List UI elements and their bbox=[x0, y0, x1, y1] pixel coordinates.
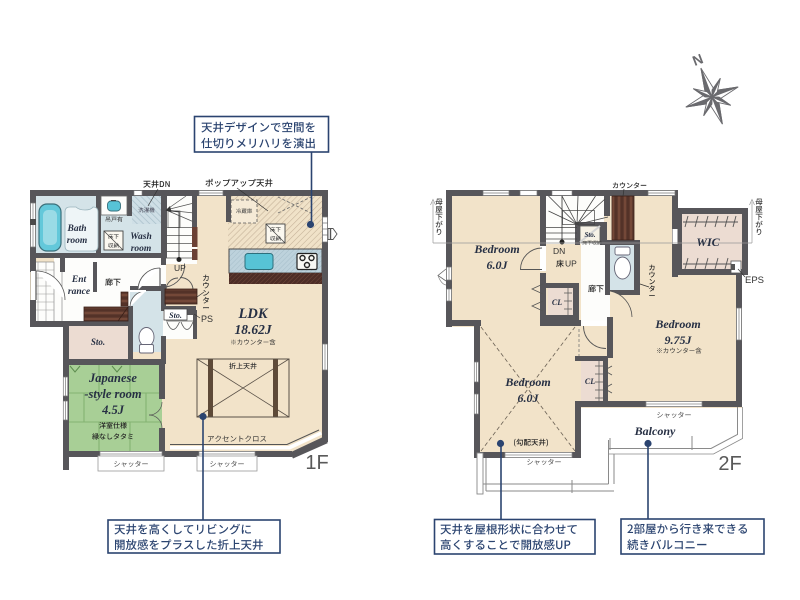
svg-text:18.62J: 18.62J bbox=[234, 322, 272, 337]
svg-text:LDK: LDK bbox=[238, 306, 269, 322]
svg-text:Balcony: Balcony bbox=[634, 424, 676, 438]
svg-text:rance: rance bbox=[68, 287, 91, 297]
svg-text:Bedroom: Bedroom bbox=[504, 375, 550, 389]
svg-text:Wash: Wash bbox=[130, 232, 151, 242]
svg-text:Ent: Ent bbox=[71, 275, 87, 285]
svg-text:Bedroom: Bedroom bbox=[473, 242, 519, 256]
svg-text:1F: 1F bbox=[305, 452, 328, 474]
svg-text:Sto.: Sto. bbox=[91, 337, 105, 347]
svg-text:Bedroom: Bedroom bbox=[654, 317, 700, 331]
svg-text:6.0J: 6.0J bbox=[518, 391, 540, 405]
svg-text:UP: UP bbox=[174, 263, 186, 273]
svg-text:CL: CL bbox=[552, 298, 562, 307]
svg-text:CL: CL bbox=[585, 377, 595, 386]
svg-text:room: room bbox=[67, 236, 88, 246]
svg-text:2F: 2F bbox=[718, 453, 741, 475]
svg-text:WIC: WIC bbox=[696, 235, 720, 249]
svg-text:room: room bbox=[131, 244, 152, 254]
svg-text:6.0J: 6.0J bbox=[487, 258, 509, 272]
svg-text:4.5J: 4.5J bbox=[101, 403, 125, 417]
svg-text:Japanese: Japanese bbox=[88, 371, 137, 385]
svg-text:UP: UP bbox=[565, 259, 577, 269]
svg-text:Sto.: Sto. bbox=[584, 231, 595, 239]
svg-text:Sto.: Sto. bbox=[169, 311, 182, 320]
svg-text:-style room: -style room bbox=[84, 387, 142, 401]
svg-text:Bath: Bath bbox=[66, 224, 86, 234]
svg-text:PS: PS bbox=[201, 314, 213, 324]
svg-text:9.75J: 9.75J bbox=[665, 333, 693, 347]
svg-text:EPS: EPS bbox=[745, 275, 764, 286]
svg-text:DN: DN bbox=[553, 246, 565, 256]
